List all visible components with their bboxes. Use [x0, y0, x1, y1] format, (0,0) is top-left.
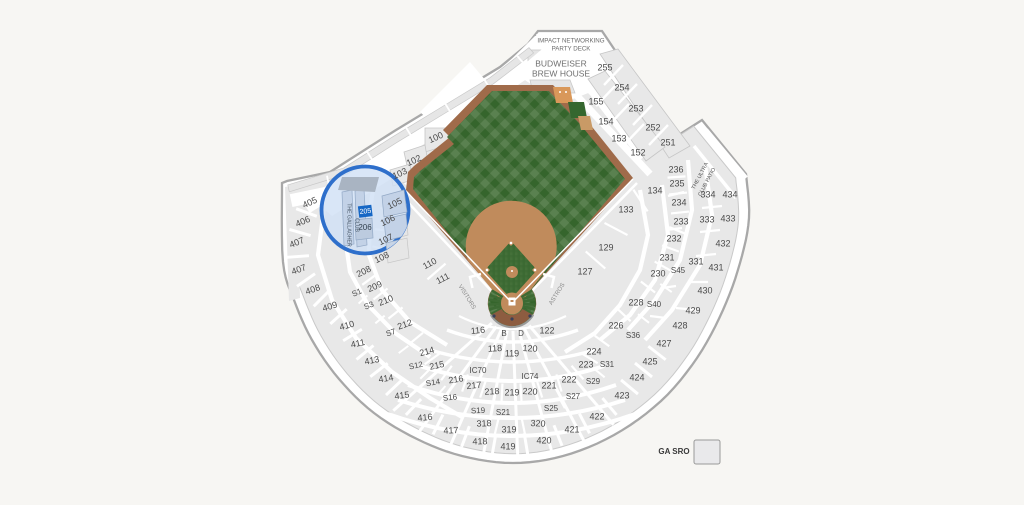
svg-text:217: 217 [466, 380, 482, 392]
svg-text:219: 219 [504, 387, 519, 397]
svg-text:S29: S29 [586, 377, 601, 386]
svg-text:D: D [518, 329, 524, 338]
svg-text:S36: S36 [626, 331, 641, 340]
svg-text:129: 129 [598, 242, 613, 252]
svg-text:422: 422 [589, 411, 604, 421]
svg-text:431: 431 [708, 262, 723, 272]
svg-text:424: 424 [629, 372, 644, 382]
svg-text:226: 226 [608, 320, 623, 330]
svg-text:433: 433 [720, 213, 735, 223]
svg-text:GA SRO: GA SRO [658, 447, 689, 456]
svg-text:319: 319 [501, 424, 516, 434]
svg-text:252: 252 [645, 122, 660, 132]
svg-text:228: 228 [628, 297, 643, 307]
svg-text:224: 224 [586, 346, 601, 356]
svg-text:S16: S16 [442, 392, 458, 402]
svg-text:415: 415 [394, 390, 410, 402]
svg-text:430: 430 [697, 285, 712, 295]
svg-text:318: 318 [476, 418, 491, 429]
svg-text:255: 255 [597, 62, 612, 72]
svg-text:434: 434 [722, 189, 737, 199]
svg-text:154: 154 [598, 116, 613, 126]
svg-text:S45: S45 [671, 266, 686, 275]
svg-text:S31: S31 [600, 360, 615, 369]
svg-text:IC74: IC74 [522, 372, 539, 381]
svg-text:PARTY DECK: PARTY DECK [552, 46, 592, 53]
svg-text:419: 419 [500, 441, 515, 451]
svg-text:253: 253 [628, 103, 643, 113]
svg-text:425: 425 [642, 356, 657, 366]
svg-text:153: 153 [611, 133, 626, 143]
svg-text:320: 320 [530, 418, 546, 429]
svg-text:118: 118 [488, 343, 503, 354]
svg-text:218: 218 [484, 386, 500, 397]
svg-text:416: 416 [417, 412, 433, 423]
svg-text:BUDWEISER: BUDWEISER [535, 58, 586, 68]
svg-text:S27: S27 [566, 392, 581, 401]
svg-text:231: 231 [659, 252, 674, 262]
svg-text:417: 417 [443, 425, 459, 436]
svg-text:331: 331 [688, 256, 703, 266]
svg-text:222: 222 [561, 374, 576, 384]
svg-text:232: 232 [666, 233, 681, 243]
svg-text:220: 220 [522, 386, 538, 397]
svg-text:254: 254 [614, 82, 629, 92]
svg-text:BREW HOUSE: BREW HOUSE [532, 68, 590, 78]
svg-text:233: 233 [673, 216, 688, 226]
svg-text:133: 133 [618, 204, 633, 214]
svg-text:120: 120 [522, 343, 538, 354]
svg-text:251: 251 [660, 137, 675, 147]
svg-text:236: 236 [668, 164, 683, 174]
svg-text:CLUB: CLUB [354, 218, 360, 232]
svg-text:428: 428 [672, 320, 687, 330]
svg-text:122: 122 [539, 325, 554, 335]
svg-text:116: 116 [470, 325, 485, 336]
svg-text:S21: S21 [496, 408, 511, 417]
svg-text:S25: S25 [544, 404, 559, 413]
svg-text:S19: S19 [471, 406, 486, 416]
svg-text:127: 127 [577, 266, 592, 276]
svg-text:134: 134 [647, 185, 662, 195]
svg-text:152: 152 [630, 147, 645, 157]
svg-text:418: 418 [472, 436, 487, 446]
svg-text:432: 432 [715, 238, 730, 248]
svg-text:S40: S40 [647, 300, 662, 309]
svg-text:223: 223 [578, 359, 593, 369]
svg-text:234: 234 [671, 197, 686, 207]
svg-text:221: 221 [541, 380, 556, 390]
svg-text:333: 333 [699, 214, 714, 224]
svg-text:IC70: IC70 [470, 366, 487, 375]
svg-text:423: 423 [614, 390, 629, 400]
svg-text:420: 420 [536, 435, 551, 445]
svg-text:205: 205 [359, 208, 372, 216]
svg-text:155: 155 [588, 96, 603, 106]
svg-text:427: 427 [656, 338, 671, 348]
svg-text:IMPACT NETWORKING: IMPACT NETWORKING [537, 38, 604, 45]
svg-text:THE GALLAGHER: THE GALLAGHER [346, 203, 352, 247]
svg-text:230: 230 [650, 268, 665, 278]
svg-text:421: 421 [564, 424, 579, 434]
svg-text:119: 119 [505, 348, 519, 358]
svg-text:429: 429 [685, 305, 700, 315]
svg-text:235: 235 [669, 178, 684, 188]
svg-text:B: B [501, 329, 506, 338]
